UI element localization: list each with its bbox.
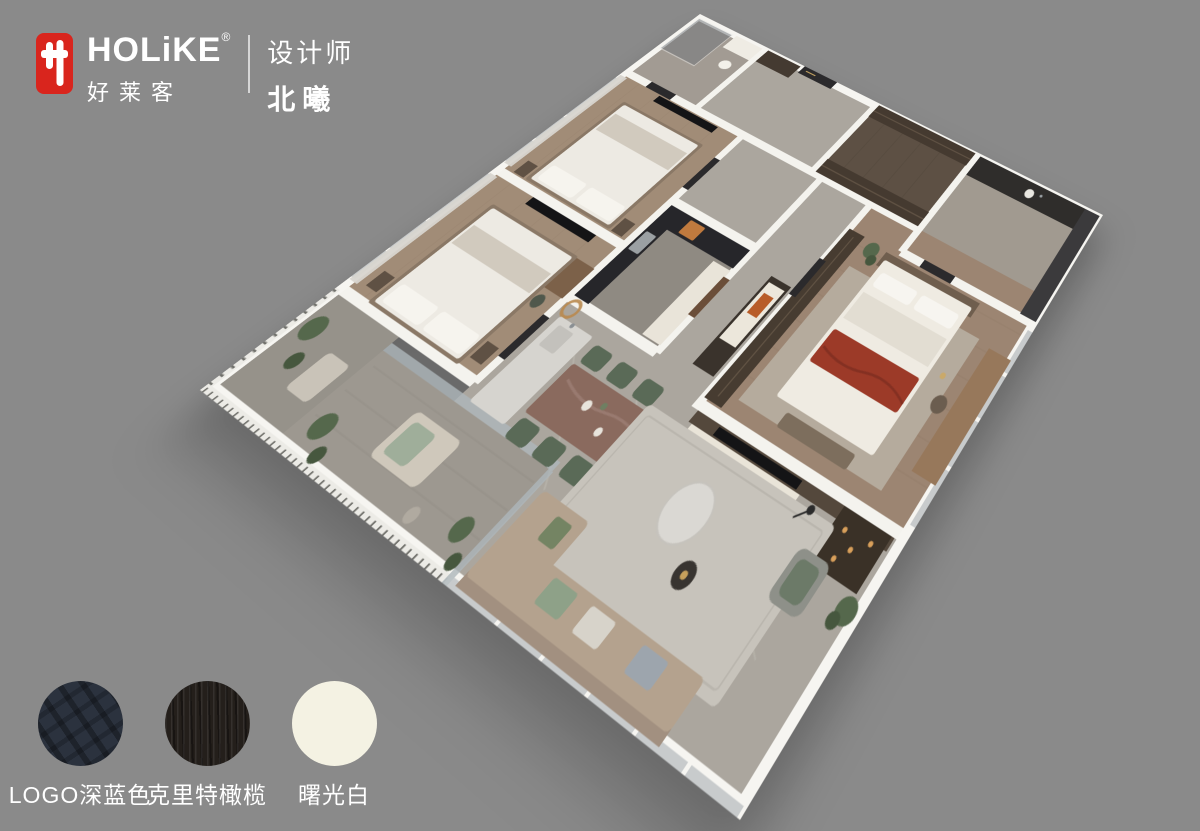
swatch-circle-white xyxy=(292,681,377,766)
designer-name: 北曦 xyxy=(267,78,354,118)
holike-logo-icon xyxy=(36,33,73,94)
swatch-logo-navy: LOGO深蓝色 xyxy=(37,681,123,810)
registered-mark: ® xyxy=(221,30,231,44)
swatch-crete-olive: 克里特橄榄 xyxy=(164,681,250,810)
swatch-circle-olive xyxy=(165,681,250,766)
brand-name-chinese: 好莱客 xyxy=(87,75,231,107)
swatch-dawn-white: 曙光白 xyxy=(291,681,377,810)
swatch-label-olive: 克里特橄榄 xyxy=(147,776,267,810)
designer-block: 设计师 北曦 xyxy=(267,33,354,118)
brand-lockup: HOLiKE® 好莱客 设计师 北曦 xyxy=(36,33,354,118)
swatch-circle-navy xyxy=(38,681,123,766)
material-swatches: LOGO深蓝色 克里特橄榄 曙光白 xyxy=(37,681,377,810)
designer-label: 设计师 xyxy=(267,33,354,70)
brand-name: HOLiKE® xyxy=(87,31,231,69)
header-divider xyxy=(248,35,250,93)
swatch-label-white: 曙光白 xyxy=(298,776,370,810)
swatch-label-navy: LOGO深蓝色 xyxy=(9,776,151,810)
brand-text: HOLiKE® 好莱客 xyxy=(87,33,231,107)
presentation-canvas: HOLiKE® 好莱客 设计师 北曦 LOGO深蓝色 克里特橄榄 曙光白 xyxy=(0,0,1200,831)
